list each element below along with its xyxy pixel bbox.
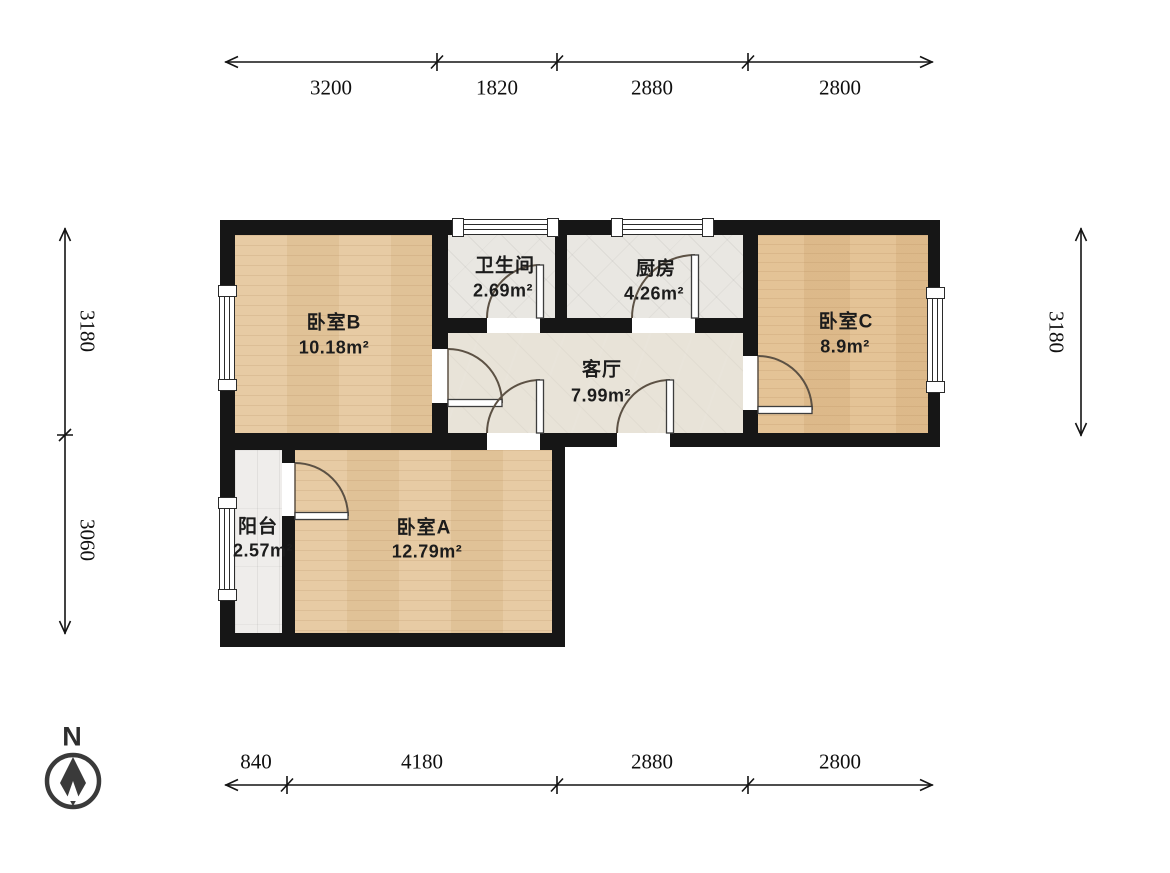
bedroom-c-area: 8.9m² <box>820 337 870 358</box>
bedroom-b-label: 卧室B <box>307 308 362 335</box>
dimension-line-left <box>57 228 73 634</box>
dimension-line-top <box>225 53 933 71</box>
balcony-area: 2.57m² <box>233 541 293 562</box>
doorway-kitchen <box>632 318 695 333</box>
bedroom-c-label: 卧室C <box>819 307 874 334</box>
window-bathroom <box>452 219 558 235</box>
doorway-entry <box>617 433 670 447</box>
window-kitchen <box>611 219 713 235</box>
bedroom-c-floor <box>758 235 928 433</box>
wall-bedroom-b-right <box>432 235 448 433</box>
dim-top-2: 1820 <box>476 76 518 101</box>
window-bedroom-b <box>219 285 235 390</box>
wall-lower-right <box>552 437 565 647</box>
dim-top-1: 3200 <box>310 76 352 101</box>
dimension-line-bottom <box>225 776 933 794</box>
living-room-label: 客厅 <box>582 355 622 382</box>
doorway-bedroom-c <box>743 356 758 410</box>
dim-bottom-1: 840 <box>240 750 272 775</box>
living-room-area: 7.99m² <box>571 386 631 407</box>
dim-left-2: 3060 <box>75 519 100 561</box>
compass-north-label: N <box>62 722 82 753</box>
doorway-bedroom-a <box>487 433 540 450</box>
wall-bath-kitchen-divider <box>555 235 567 318</box>
doorway-bathroom <box>487 318 540 333</box>
wall-exterior-top <box>220 220 940 235</box>
dim-top-4: 2800 <box>819 76 861 101</box>
bedroom-a-label: 卧室A <box>397 513 452 540</box>
doorway-balcony <box>282 463 295 516</box>
wall-lower-bottom <box>220 633 565 647</box>
dim-bottom-3: 2880 <box>631 750 673 775</box>
dim-top-3: 2880 <box>631 76 673 101</box>
window-bedroom-c <box>927 287 943 392</box>
doorway-bedroom-b <box>432 349 448 403</box>
bedroom-b-area: 10.18m² <box>299 338 370 359</box>
bedroom-a-area: 12.79m² <box>392 542 463 563</box>
dim-bottom-2: 4180 <box>401 750 443 775</box>
dim-bottom-4: 2800 <box>819 750 861 775</box>
floor-plan-canvas: 卧室B 10.18m² 卫生间 2.69m² 厨房 4.26m² 卧室C 8.9… <box>0 0 1170 873</box>
bathroom-label: 卫生间 <box>475 251 535 278</box>
kitchen-area: 4.26m² <box>624 284 684 305</box>
dim-right-1: 3180 <box>1044 311 1069 353</box>
living-room-floor <box>448 333 743 433</box>
bathroom-area: 2.69m² <box>473 281 533 302</box>
kitchen-label: 厨房 <box>636 254 676 281</box>
dim-left-1: 3180 <box>75 310 100 352</box>
compass-icon <box>47 755 99 807</box>
dimension-line-right <box>1076 228 1087 436</box>
balcony-label: 阳台 <box>238 512 278 539</box>
